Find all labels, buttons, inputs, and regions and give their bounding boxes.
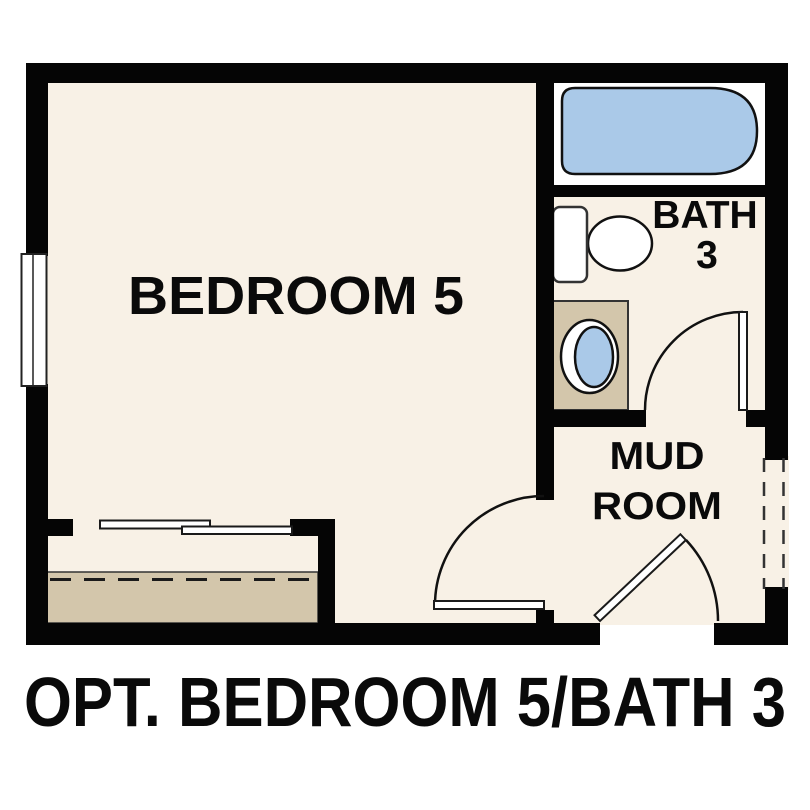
mudroom-label-line1: MUD [610,435,705,478]
wall-bottom-right [714,623,788,645]
bath-label-line1: BATH [652,194,757,237]
wall-closet-left-stub [26,519,73,536]
wall-left-upper [26,63,48,256]
sink-basin [575,327,613,387]
floor-wall-opening-fill [763,456,789,590]
wall-bottom-left [26,623,600,645]
floorplan-page: BEDROOM 5 BATH 3 MUD ROOM OPT. BEDROOM 5… [0,0,810,810]
toilet-tank [553,207,587,282]
wall-top [26,63,788,83]
window-frame [22,254,47,386]
wall-divider-bottom-stub [536,610,554,625]
mudroom-label-line2: ROOM [592,485,722,528]
bedroom-door-leaf [434,601,544,609]
toilet-bowl [588,217,652,271]
closet [46,572,318,623]
window [22,254,47,386]
bath-label-line2: 3 [696,234,718,277]
floorplan-drawing: BEDROOM 5 BATH 3 MUD ROOM OPT. BEDROOM 5… [0,0,810,810]
bathtub [562,88,757,174]
wall-bedroom-bath-divider [536,63,554,500]
wall-right-upper [765,63,788,460]
plan-caption: OPT. BEDROOM 5/BATH 3 [24,663,786,741]
bath-door-leaf [739,312,747,410]
wall-bath-south [536,410,646,427]
bedroom-label: BEDROOM 5 [128,266,464,326]
wall-left-lower [26,384,48,645]
wall-bath-south-stub [746,410,765,427]
wall-closet-right-vertical [318,519,335,625]
sliding-door-right [182,527,292,535]
